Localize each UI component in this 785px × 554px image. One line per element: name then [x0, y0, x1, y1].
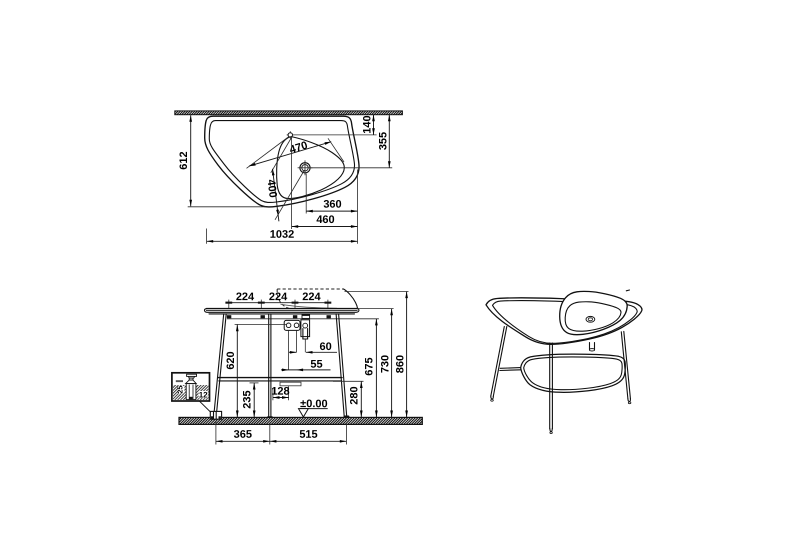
svg-text:60: 60 [319, 341, 331, 353]
svg-text:675: 675 [364, 357, 376, 375]
svg-text:1032: 1032 [270, 229, 294, 241]
svg-text:140: 140 [362, 115, 374, 133]
svg-text:515: 515 [299, 429, 317, 441]
svg-text:360: 360 [323, 199, 341, 211]
svg-text:235: 235 [241, 390, 253, 408]
svg-text:128: 128 [271, 386, 289, 398]
svg-text:25: 25 [178, 386, 185, 394]
svg-text:224: 224 [236, 291, 255, 303]
svg-text:365: 365 [234, 429, 252, 441]
svg-text:860: 860 [395, 355, 407, 373]
svg-text:400: 400 [265, 179, 279, 199]
svg-text:224: 224 [269, 291, 288, 303]
svg-text:460: 460 [316, 214, 334, 226]
svg-text:280: 280 [349, 386, 361, 404]
svg-text:620: 620 [225, 351, 237, 369]
svg-text:224: 224 [302, 291, 321, 303]
svg-text:55: 55 [310, 359, 322, 371]
svg-text:12: 12 [199, 390, 208, 399]
svg-text:612: 612 [178, 151, 190, 169]
svg-text:355: 355 [377, 132, 389, 150]
svg-text:730: 730 [379, 355, 391, 373]
